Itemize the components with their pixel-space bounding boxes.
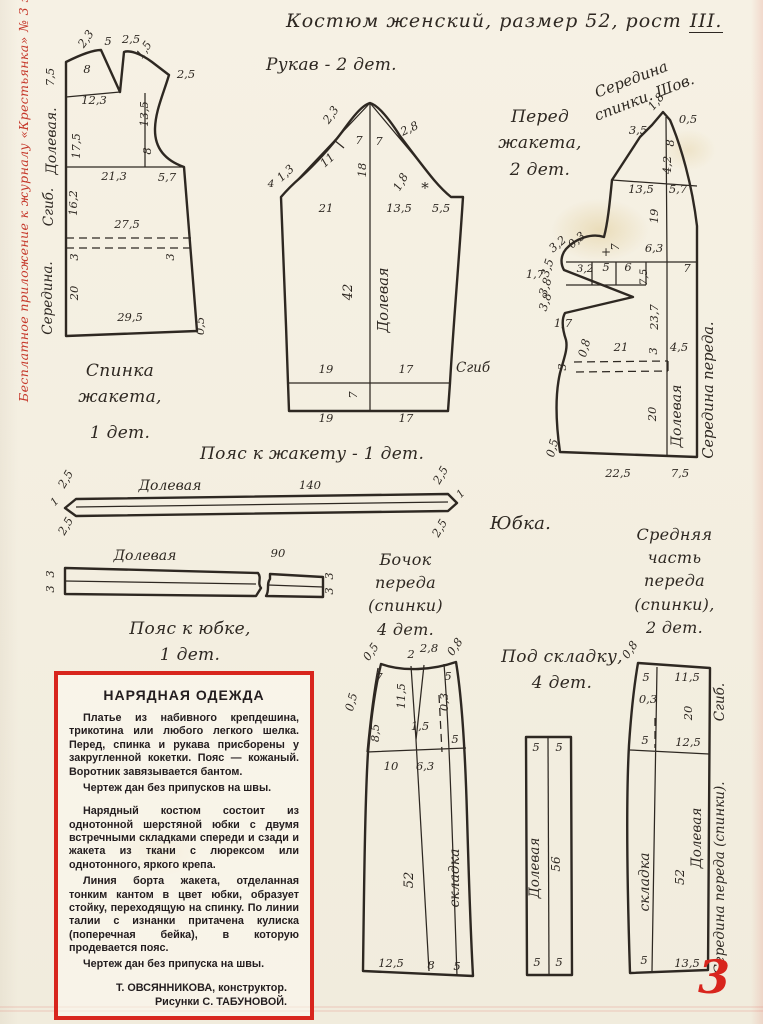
measurement-label: 2 xyxy=(406,647,414,661)
measurement-label: 2,5 xyxy=(429,464,451,488)
measurement-label: 6,3 xyxy=(645,241,663,255)
pleat-label: складка xyxy=(637,852,653,911)
measurement-label: 6,3 xyxy=(416,759,434,773)
measurement-label: 140 xyxy=(299,478,321,492)
measurement-label: 7 xyxy=(683,261,691,275)
credits: Т. ОВСЯННИКОВА, конструктор. Рисунки С. … xyxy=(69,981,299,1010)
measurement-label: 17,5 xyxy=(69,133,83,159)
measurement-label: 5 xyxy=(104,34,111,48)
measurement-label: 20 xyxy=(645,407,659,423)
caption-sleeve: Рукав - 2 дет. xyxy=(266,52,397,78)
measurement-label: 7,5 xyxy=(638,268,650,285)
measurement-label: 19 xyxy=(319,362,334,376)
center-label: Середина. xyxy=(40,261,56,334)
measurement-label: 52 xyxy=(672,869,687,885)
front-jacket-waist-dashes xyxy=(574,361,668,372)
skirt-side-panel-lines xyxy=(367,664,466,976)
measurement-label: 16,2 xyxy=(66,190,80,216)
measurement-label: 0,5 xyxy=(543,437,561,458)
sleeve-construction-lines xyxy=(281,103,450,411)
center-front-label: Середина переда. xyxy=(701,321,717,458)
jacket-belt-center-line xyxy=(76,502,448,507)
page-number: 3 xyxy=(698,950,730,1004)
measurement-label: 6 xyxy=(624,260,631,274)
measurement-label: 42 xyxy=(341,284,356,302)
measurement-label: 7 xyxy=(355,133,363,147)
caption-center-panel: Средняя часть переда (спинки), 2 дет. xyxy=(612,523,737,639)
sleeve-piece: 2,3772,811181,8*41,32113,55,542Долевая19… xyxy=(267,103,491,425)
measurement-label: 3 xyxy=(646,347,660,354)
caption-jacket-belt: Пояс к жакету - 1 дет. xyxy=(200,441,424,467)
measurement-label: 8 xyxy=(140,147,154,154)
measurement-label: 0,3 xyxy=(437,693,451,711)
pleat-underlay-piece: 55Долевая5655 xyxy=(526,737,572,975)
measurement-label: 5 xyxy=(444,669,451,683)
skirt-side-panel-labels: 0,522,80,87511,50,50,31,58,55106,352скла… xyxy=(342,635,466,973)
measurement-label: 2,3 xyxy=(319,103,342,127)
measurement-label: 52 xyxy=(402,872,417,889)
measurement-label: 0,8 xyxy=(575,337,593,358)
credit-line: Рисунки С. ТАБУНОВОЙ. xyxy=(69,995,287,1010)
measurement-label: 2,8 xyxy=(419,641,438,655)
measurement-label: 3,5 xyxy=(538,257,557,279)
grain-line-label: Долевая. xyxy=(44,107,60,175)
measurement-label: 18 xyxy=(355,163,369,178)
measurement-label: 27,5 xyxy=(113,217,140,231)
measurement-label: 4,5 xyxy=(669,340,688,354)
sleeve-outline xyxy=(281,103,463,411)
description-paragraph: Нарядный костюм состоит из однотонной ше… xyxy=(69,805,299,872)
grain-line-label: Долевая xyxy=(113,548,177,564)
measurement-label: 5,7 xyxy=(158,170,177,184)
description-paragraph: Линия борта жакета, отделанная тонким ка… xyxy=(69,875,299,955)
measurement-label: 7 xyxy=(375,670,383,684)
measurement-label: 0,5 xyxy=(679,112,697,126)
measurement-label: 0,3 xyxy=(639,692,657,706)
description-paragraph: Платье из набивного крепдешина, трикотин… xyxy=(69,712,299,779)
back-jacket-fold-lines xyxy=(66,238,191,248)
measurement-label: 23,7 xyxy=(647,304,661,331)
caption-skirt-belt: Пояс к юбке, 1 дет. xyxy=(110,616,270,669)
measurement-label: 3 xyxy=(67,253,81,260)
measurement-label: 5 xyxy=(533,955,540,969)
measurement-label: 11 xyxy=(317,150,337,170)
skirt-side-panel-outline xyxy=(363,662,473,976)
measurement-label: 2,5 xyxy=(428,517,450,541)
credit-line: Т. ОВСЯННИКОВА, конструктор. xyxy=(69,981,287,996)
measurement-label: 13,5 xyxy=(674,956,700,970)
measurement-label: 22,5 xyxy=(604,466,631,480)
description-title: НАРЯДНАЯ ОДЕЖДА xyxy=(69,687,299,703)
description-paragraph: Чертеж дан без припусков на швы. xyxy=(69,782,299,795)
measurement-label: 3 xyxy=(322,587,336,594)
measurement-label: 5,5 xyxy=(432,201,450,215)
caption-back-jacket-count: 1 дет. xyxy=(55,420,185,446)
measurement-label: 21 xyxy=(613,340,629,354)
measurement-label: 17 xyxy=(399,411,414,425)
measurement-label: 2,5 xyxy=(121,32,140,46)
measurement-label: 12,5 xyxy=(378,956,404,970)
measurement-label: 7 xyxy=(346,391,360,399)
measurement-label: 8 xyxy=(427,958,434,972)
grain-line-label: Долевая xyxy=(138,478,202,494)
skirt-belt-piece: Долевая903333 xyxy=(43,546,336,597)
skirt-belt-center-line xyxy=(65,581,323,587)
measurement-label: 3,2 xyxy=(546,233,569,255)
measurement-label: 4 xyxy=(267,178,275,190)
jacket-belt-piece: 2,52,51Долевая1402,52,51 xyxy=(48,464,467,541)
measurement-label: 0,5 xyxy=(360,640,382,663)
measurement-label: 13,5 xyxy=(628,182,654,196)
measurement-label: 2,5 xyxy=(54,515,76,539)
jacket-belt-labels: 2,52,51Долевая1402,52,51 xyxy=(48,464,467,541)
measurement-label: 5 xyxy=(555,740,562,754)
pattern-sheet-page: Бесплатное приложение к журналу «Крестья… xyxy=(0,0,763,1024)
skirt-center-panel-piece: 0,8511,50,320512,5складка52ДолеваяСереди… xyxy=(619,638,728,974)
measurement-label: 1,7 xyxy=(554,316,573,330)
caption-front-jacket: Перед жакета, 2 дет. xyxy=(490,104,590,183)
measurement-label: 3,5 xyxy=(629,123,647,137)
fold-label: Сгиб. xyxy=(41,188,57,226)
fold-label: Сгиб. xyxy=(712,683,728,721)
measurement-label: 1 xyxy=(454,487,467,500)
measurement-label: 7,5 xyxy=(43,68,57,86)
measurement-label: 12,3 xyxy=(81,93,107,107)
measurement-label: * xyxy=(421,179,429,197)
measurement-label: 8,5 xyxy=(368,724,382,742)
pleat-label: складка xyxy=(447,848,463,907)
measurement-label: 2,5 xyxy=(176,67,195,81)
measurement-label: 3,2 xyxy=(577,263,594,275)
grain-line-label: Долевая xyxy=(669,385,685,449)
measurement-label: 0,5 xyxy=(193,317,207,335)
caption-skirt-section: Юбка. xyxy=(490,510,551,538)
caption-back-jacket: Спинка жакета, xyxy=(55,358,185,411)
measurement-label: 10 xyxy=(384,759,399,773)
skirt-side-panel-piece: 0,522,80,87511,50,50,31,58,55106,352скла… xyxy=(342,635,473,976)
measurement-label: 7,5 xyxy=(671,466,689,480)
measurement-label: 4,2 xyxy=(660,156,674,175)
measurement-label: 5 xyxy=(640,953,647,967)
measurement-label: 13,5 xyxy=(386,201,412,215)
grain-line-label: Долевая xyxy=(376,267,392,333)
measurement-label: 56 xyxy=(549,856,563,872)
grain-line-label: Долевая xyxy=(527,838,543,900)
grain-line-label: Долевая xyxy=(689,808,705,870)
measurement-label: 3 xyxy=(555,363,569,370)
measurement-label: 11,5 xyxy=(674,670,700,684)
measurement-label: 17 xyxy=(399,362,414,376)
measurement-label: 5 xyxy=(532,740,539,754)
caption-pleat-underlay: Под складку, 4 дет. xyxy=(492,644,632,697)
measurement-label: 5 xyxy=(453,959,460,973)
caption-side-panel: Бочок переда (спинки) 4 дет. xyxy=(348,548,463,641)
measurement-label: 5 xyxy=(602,260,609,274)
measurement-label: 7 xyxy=(375,134,383,148)
measurement-label: 5 xyxy=(555,955,562,969)
measurement-label: 21,3 xyxy=(100,169,127,183)
measurement-label: 3 xyxy=(322,572,336,579)
measurement-label: 21 xyxy=(318,201,334,215)
measurement-label: 8 xyxy=(83,62,90,76)
measurement-label: 5 xyxy=(451,732,458,746)
measurement-label: 20 xyxy=(681,706,695,722)
description-paragraph: Чертеж дан без припуска на швы. xyxy=(69,958,299,971)
measurement-label: 7 xyxy=(608,243,622,251)
measurement-label: 5 xyxy=(641,733,648,747)
measurement-label: 0,5 xyxy=(342,691,360,712)
measurement-label: 19 xyxy=(319,411,334,425)
measurement-label: 19 xyxy=(647,209,661,224)
measurement-label: 1 xyxy=(48,495,61,508)
measurement-label: 3 xyxy=(43,585,57,592)
measurement-label: 5,7 xyxy=(669,182,688,196)
measurement-label: 2,3 xyxy=(74,27,97,51)
measurement-label: 3 xyxy=(163,253,177,260)
description-box: НАРЯДНАЯ ОДЕЖДА Платье из набивного креп… xyxy=(54,671,314,1020)
measurement-label: 20 xyxy=(67,286,81,302)
center-front-label: Середина переда (спинки). xyxy=(712,781,728,974)
fold-label: Сгиб xyxy=(456,360,491,376)
pleat-underlay-center-line xyxy=(548,737,549,975)
measurement-label: 3 xyxy=(43,570,57,577)
measurement-label: 13,5 xyxy=(137,101,151,127)
measurement-label: 1,5 xyxy=(411,719,429,733)
measurement-label: 90 xyxy=(271,546,286,560)
measurement-label: 1,8 xyxy=(390,171,411,194)
measurement-label: 1,3 xyxy=(274,162,297,185)
back-jacket-piece: 2,352,51,57,582,512,313,517,5821,35,716,… xyxy=(40,27,207,336)
measurement-label: 5 xyxy=(642,670,649,684)
measurement-label: 29,5 xyxy=(116,310,143,324)
measurement-label: 12,5 xyxy=(675,735,701,749)
pleat-underlay-labels: 55Долевая5655 xyxy=(527,740,563,969)
measurement-label: 11,5 xyxy=(394,683,408,709)
measurement-label: 2,5 xyxy=(54,468,76,492)
measurement-label: 8 xyxy=(663,139,677,146)
